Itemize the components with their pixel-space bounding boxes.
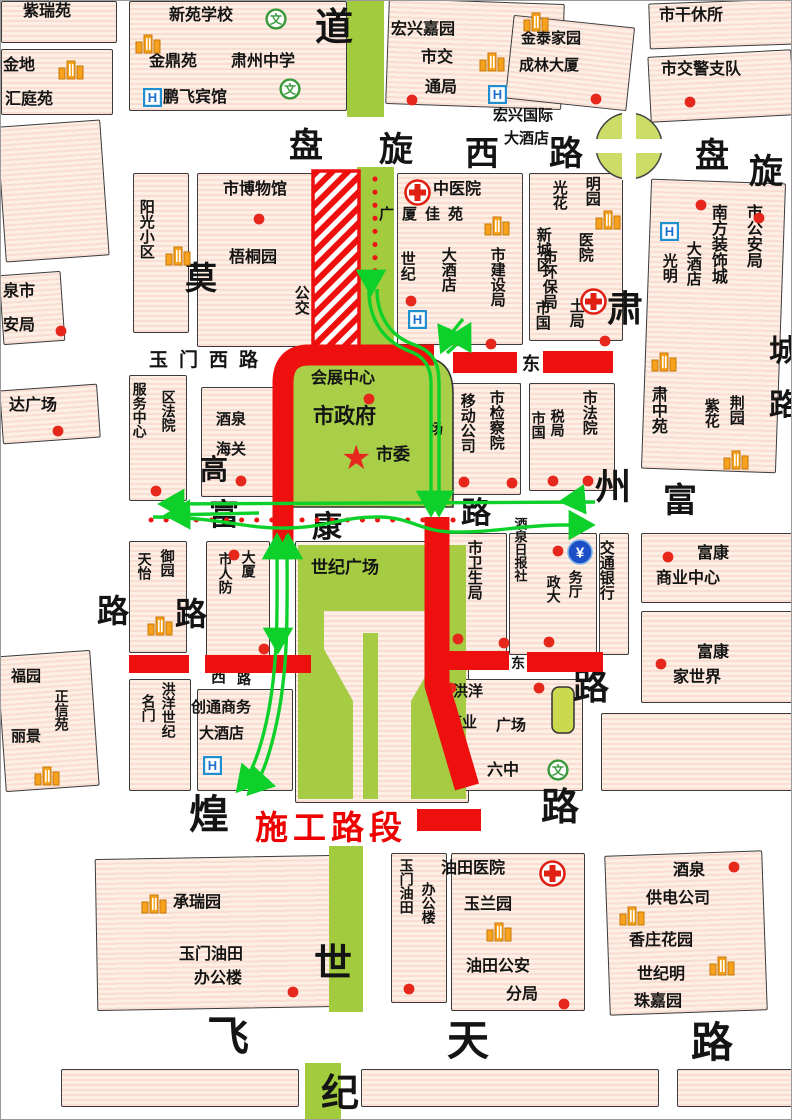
routes-overlay (1, 1, 792, 1120)
legend-label: 施工路段 (255, 801, 407, 849)
construction-bars (129, 351, 613, 831)
construction-hatched-section (313, 171, 359, 351)
city-map: 施工路段 紫瑞苑金地汇庭苑新苑学校金鼎苑肃州中学鹏飞宾馆宏兴嘉园市交通局金泰家园… (0, 0, 792, 1120)
legend-construction-sample (417, 809, 481, 831)
